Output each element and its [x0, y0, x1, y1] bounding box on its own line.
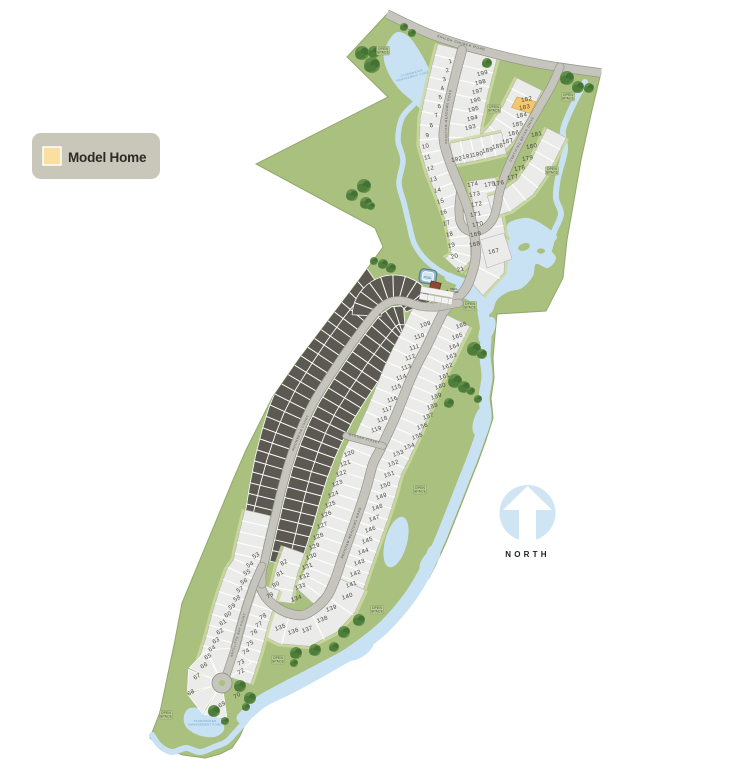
svg-text:OPENSPACE: OPENSPACE [546, 167, 559, 175]
svg-text:OPENSPACE: OPENSPACE [414, 486, 427, 494]
svg-text:OPENSPACE: OPENSPACE [272, 656, 285, 664]
svg-text:Model Home: Model Home [68, 150, 147, 165]
svg-text:OPENSPACE: OPENSPACE [488, 105, 501, 113]
svg-text:OPENSPACE: OPENSPACE [377, 47, 390, 55]
svg-text:OPENSPACE: OPENSPACE [562, 93, 575, 101]
svg-text:OPENSPACE: OPENSPACE [371, 606, 384, 614]
svg-text:OPENSPACE: OPENSPACE [464, 302, 477, 310]
svg-text:NORTH: NORTH [505, 550, 549, 559]
svg-text:OPENSPACE: OPENSPACE [160, 711, 173, 719]
